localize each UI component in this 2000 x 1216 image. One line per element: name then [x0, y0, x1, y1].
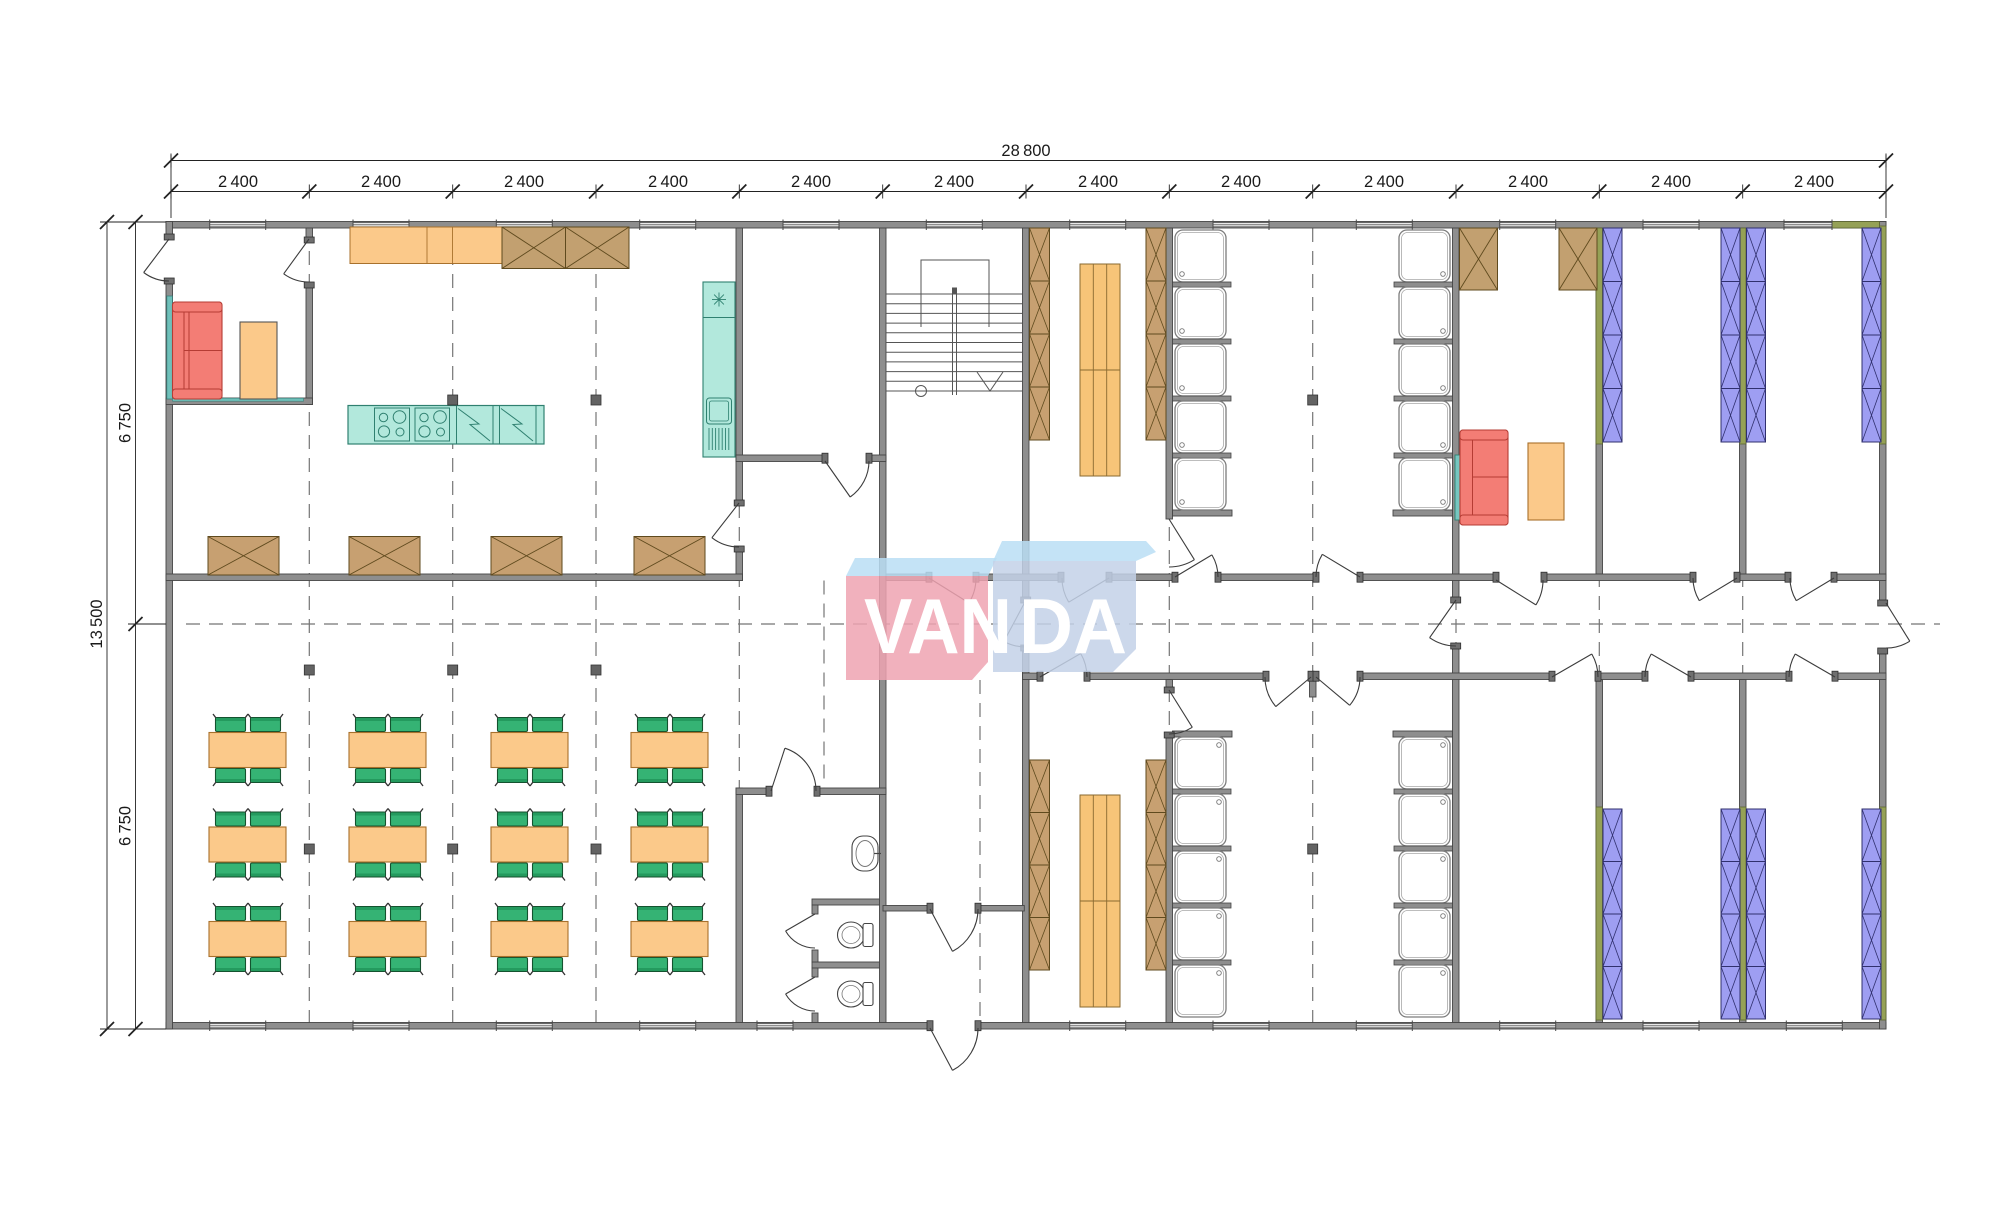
svg-text:2 400: 2 400	[791, 173, 831, 191]
svg-text:2 400: 2 400	[218, 173, 258, 191]
svg-text:2 400: 2 400	[361, 173, 401, 191]
svg-text:2 400: 2 400	[1364, 173, 1404, 191]
svg-text:6 750: 6 750	[117, 806, 135, 846]
svg-text:2 400: 2 400	[1221, 173, 1261, 191]
svg-text:2 400: 2 400	[934, 173, 974, 191]
svg-text:28 800: 28 800	[1001, 142, 1050, 160]
svg-text:2 400: 2 400	[1078, 173, 1118, 191]
svg-text:2 400: 2 400	[1794, 173, 1834, 191]
svg-text:2 400: 2 400	[504, 173, 544, 191]
svg-text:VAN: VAN	[864, 582, 1012, 670]
svg-text:2 400: 2 400	[1651, 173, 1691, 191]
svg-text:2 400: 2 400	[648, 173, 688, 191]
svg-text:13 500: 13 500	[88, 599, 106, 648]
svg-text:6 750: 6 750	[117, 403, 135, 443]
svg-text:2 400: 2 400	[1508, 173, 1548, 191]
svg-text:DA: DA	[1019, 582, 1127, 670]
